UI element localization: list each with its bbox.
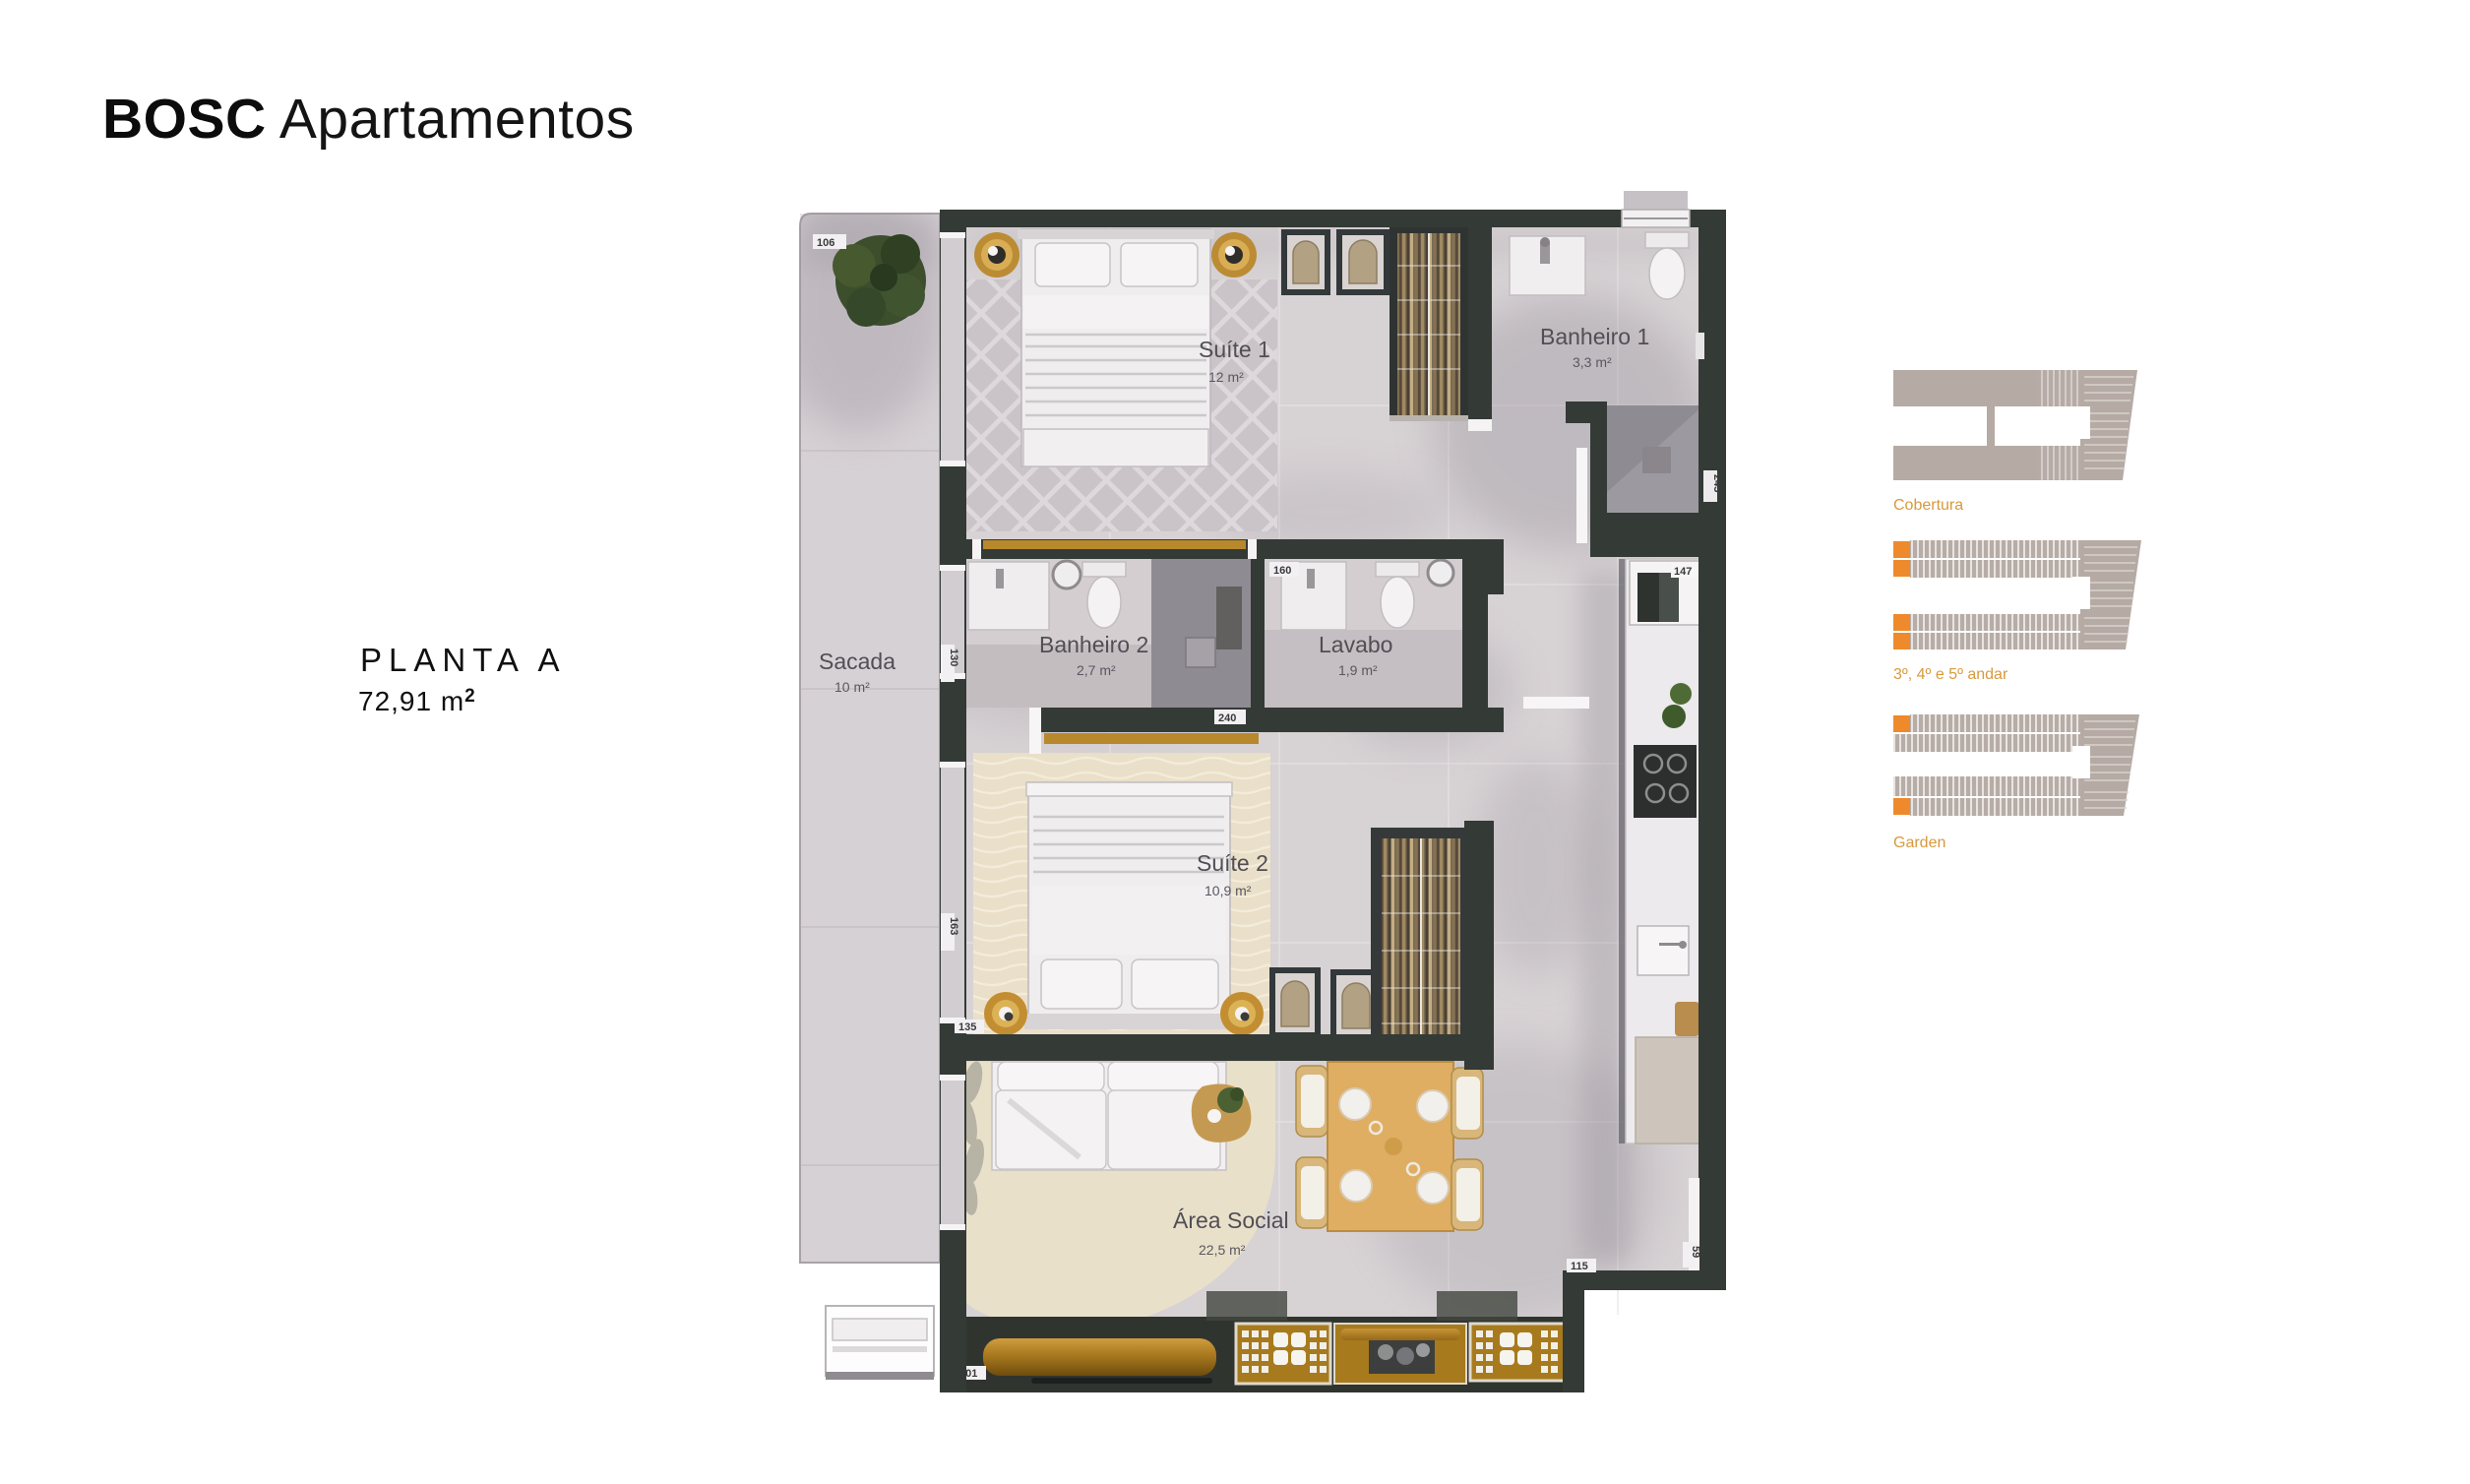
svg-text:Banheiro 2: Banheiro 2 <box>1039 632 1148 657</box>
svg-text:59: 59 <box>1690 1246 1701 1258</box>
svg-text:160: 160 <box>1273 565 1291 577</box>
svg-text:Suíte 2: Suíte 2 <box>1197 850 1268 876</box>
svg-text:Lavabo: Lavabo <box>1319 632 1392 657</box>
svg-text:3,3 m²: 3,3 m² <box>1573 354 1612 370</box>
svg-text:130: 130 <box>948 649 959 666</box>
svg-text:3º, 4º e 5º andar: 3º, 4º e 5º andar <box>1893 666 2008 683</box>
svg-text:10,9 m²: 10,9 m² <box>1204 883 1252 898</box>
svg-text:240: 240 <box>1218 712 1236 724</box>
svg-text:12 m²: 12 m² <box>1208 369 1244 385</box>
svg-text:Garden: Garden <box>1893 835 1945 851</box>
svg-text:2,7 m²: 2,7 m² <box>1077 662 1116 678</box>
svg-text:106: 106 <box>817 237 834 249</box>
svg-text:PLANTA A: PLANTA A <box>360 642 566 678</box>
svg-text:245: 245 <box>1711 474 1723 492</box>
svg-text:72,91 m2: 72,91 m2 <box>358 686 476 716</box>
svg-text:1,9 m²: 1,9 m² <box>1338 662 1378 678</box>
svg-text:Suíte 1: Suíte 1 <box>1199 337 1270 362</box>
svg-text:Sacada: Sacada <box>819 649 895 674</box>
svg-text:147: 147 <box>1674 566 1692 578</box>
svg-text:Cobertura: Cobertura <box>1893 497 1963 514</box>
svg-text:22,5 m²: 22,5 m² <box>1199 1242 1246 1258</box>
svg-text:163: 163 <box>948 917 959 935</box>
svg-text:Área Social: Área Social <box>1173 1207 1289 1233</box>
svg-text:115: 115 <box>1571 1261 1588 1272</box>
svg-text:135: 135 <box>958 1021 976 1033</box>
svg-text:Banheiro 1: Banheiro 1 <box>1540 324 1649 349</box>
svg-text:BOSC Apartamentos: BOSC Apartamentos <box>102 88 635 151</box>
svg-text:10 m²: 10 m² <box>834 679 870 695</box>
